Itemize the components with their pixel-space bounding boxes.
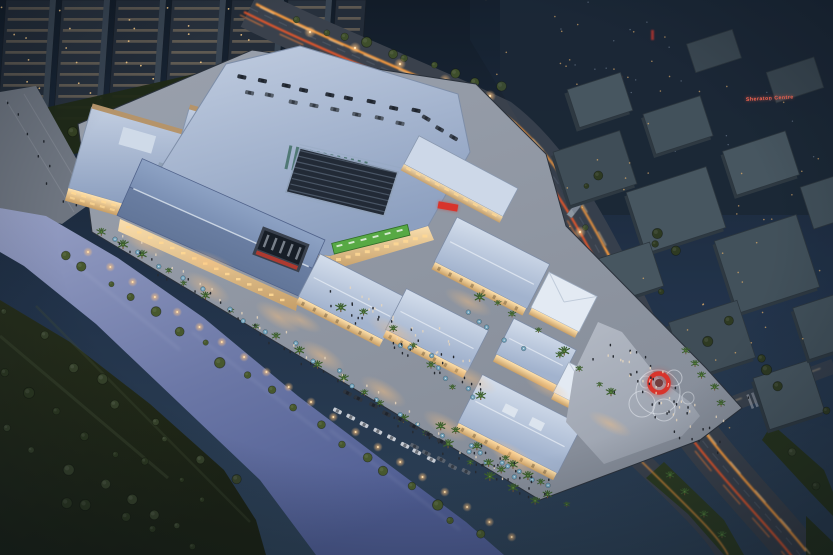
aerial-rendering-stage: Sheraton CentreSheraton Centre xyxy=(0,0,833,555)
aerial-rendering: Sheraton CentreSheraton Centre xyxy=(0,0,833,555)
vignette xyxy=(0,0,833,555)
scene-root: Sheraton CentreSheraton Centre xyxy=(0,0,833,555)
